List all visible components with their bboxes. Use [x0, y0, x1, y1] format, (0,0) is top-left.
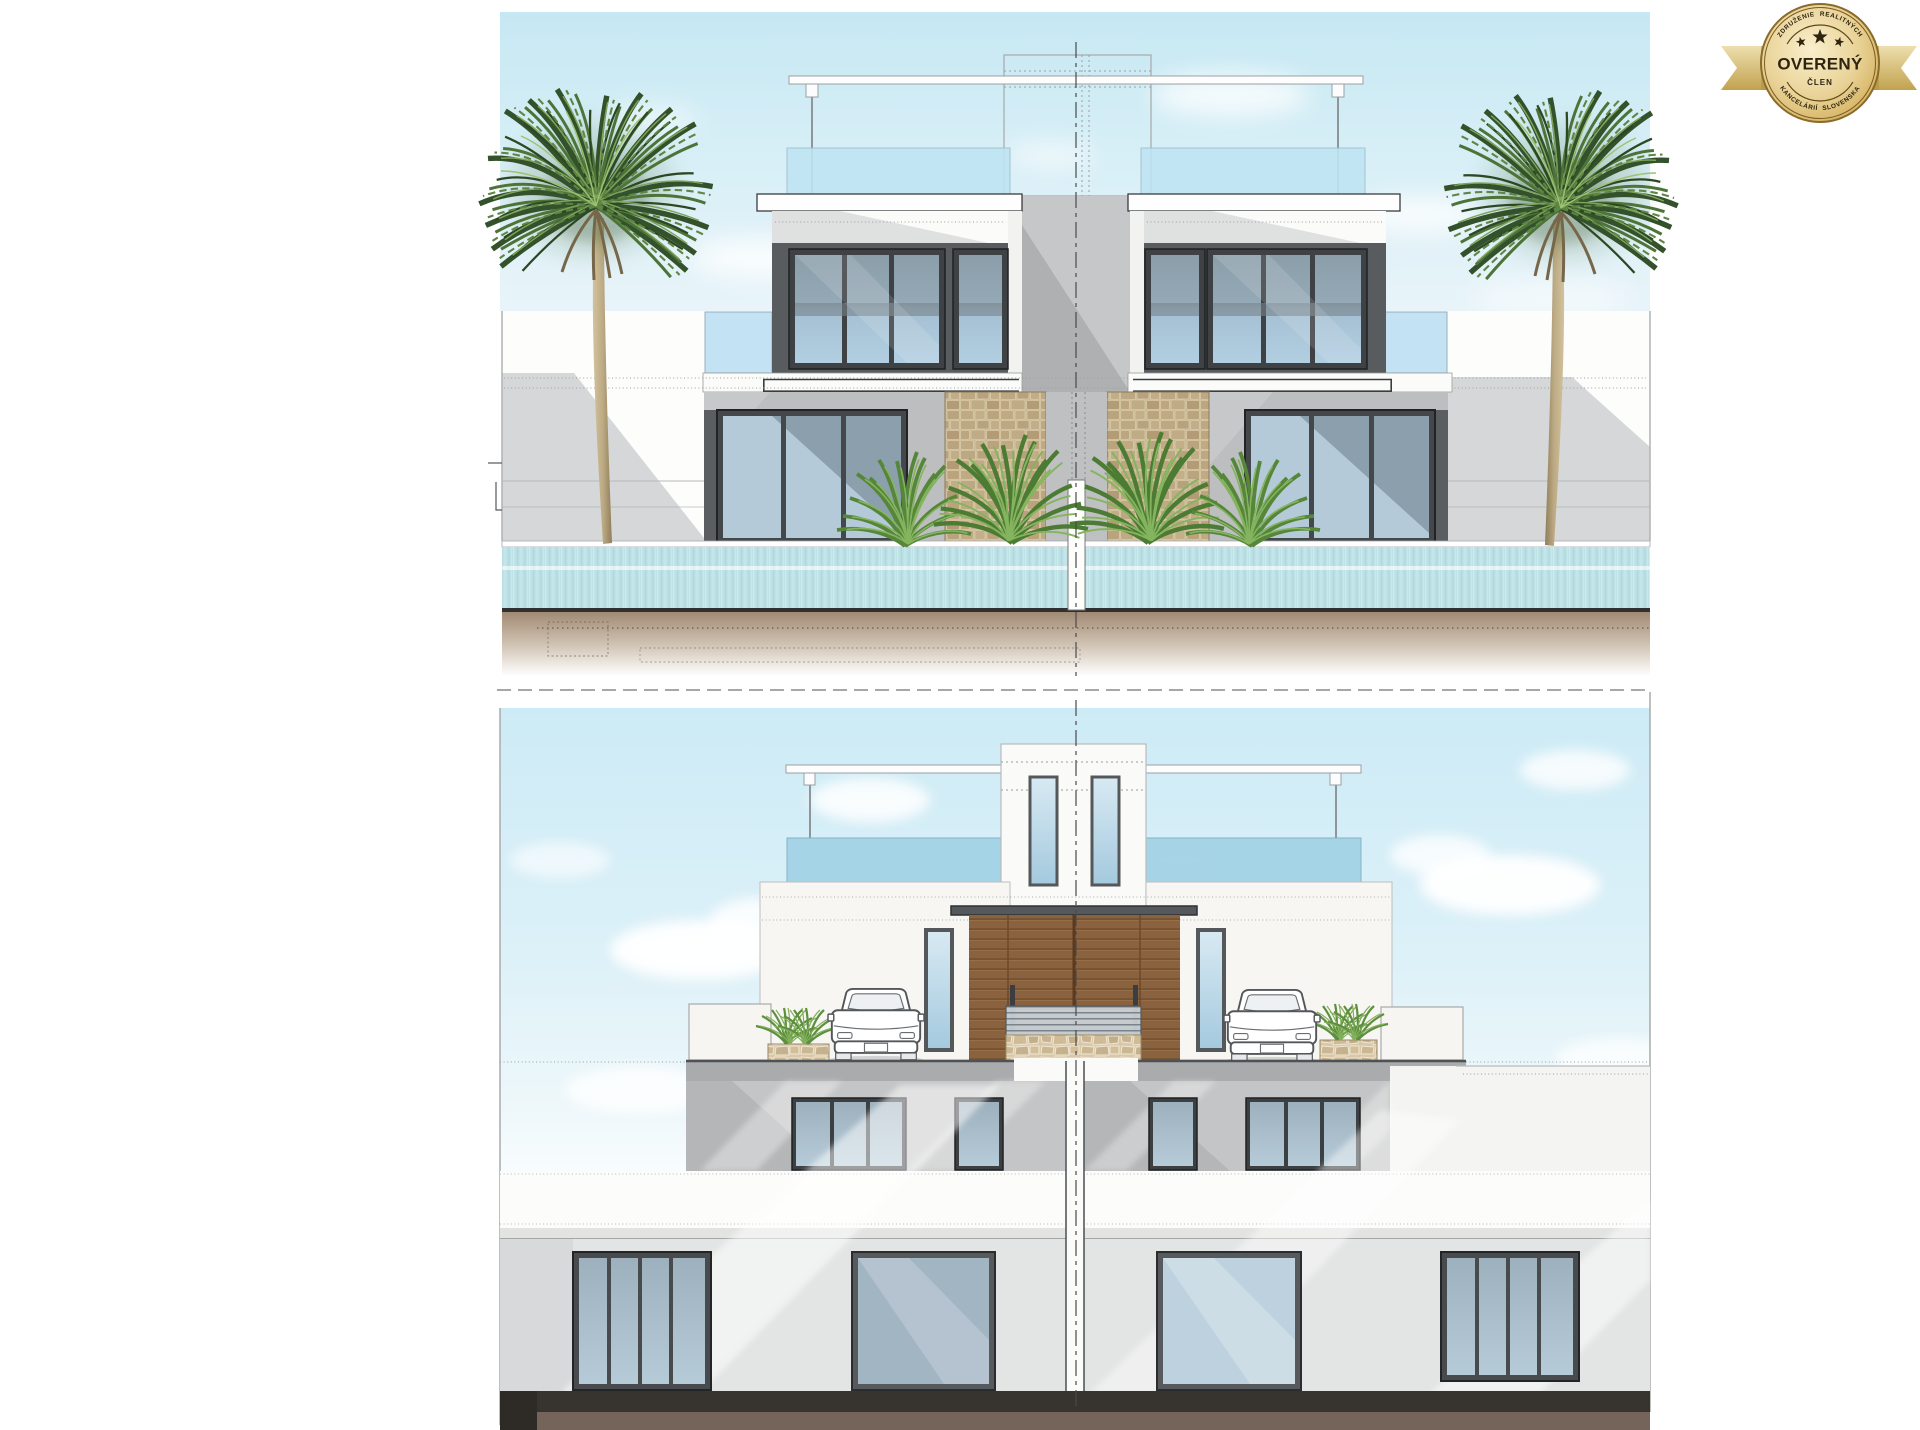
svg-text:OVERENÝ: OVERENÝ [1777, 55, 1863, 74]
svg-text:ČLEN: ČLEN [1807, 78, 1833, 87]
